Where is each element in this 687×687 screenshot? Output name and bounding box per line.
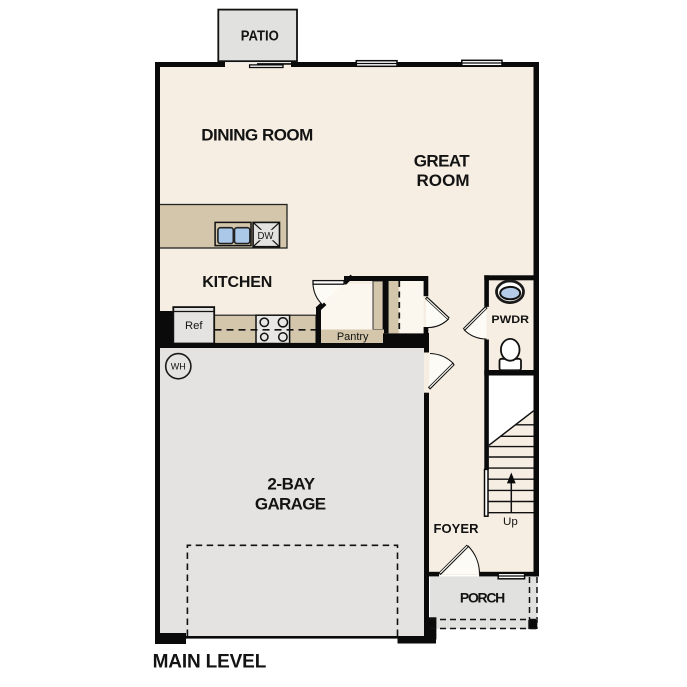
svg-text:KITCHEN: KITCHEN <box>202 274 272 291</box>
svg-text:GARAGE: GARAGE <box>255 495 326 514</box>
svg-text:FOYER: FOYER <box>434 521 480 536</box>
svg-text:PORCH: PORCH <box>460 590 505 606</box>
svg-text:DINING ROOM: DINING ROOM <box>201 126 313 145</box>
svg-text:DW: DW <box>258 231 275 242</box>
svg-text:Pantry: Pantry <box>337 331 369 343</box>
svg-text:ROOM: ROOM <box>417 171 470 190</box>
svg-text:Ref: Ref <box>185 320 203 332</box>
svg-text:Up: Up <box>503 516 518 528</box>
svg-text:GREAT: GREAT <box>414 152 471 171</box>
svg-text:WH: WH <box>171 362 186 373</box>
svg-text:MAIN LEVEL: MAIN LEVEL <box>153 651 267 672</box>
svg-text:PATIO: PATIO <box>241 28 279 45</box>
svg-text:PWDR: PWDR <box>491 314 529 326</box>
svg-text:2-BAY: 2-BAY <box>267 474 315 493</box>
